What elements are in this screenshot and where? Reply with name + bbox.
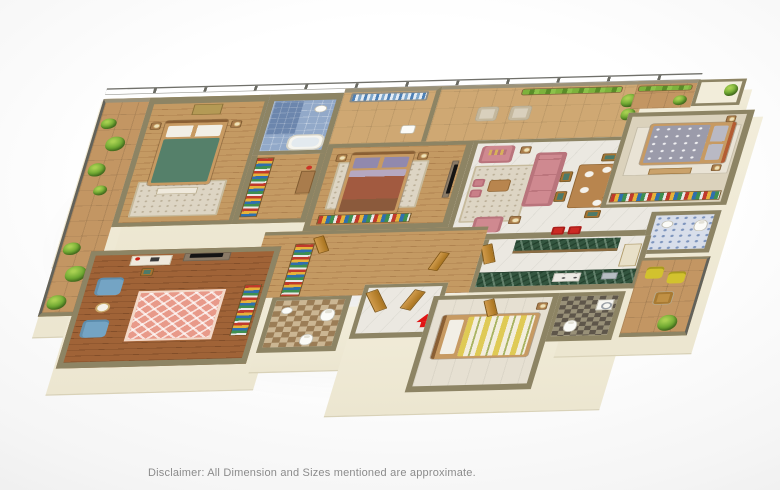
kitchen bbox=[469, 235, 652, 292]
laptop bbox=[150, 257, 160, 261]
plant-icon bbox=[672, 95, 689, 105]
bedroom-3-bed bbox=[639, 122, 737, 165]
plant-icon bbox=[45, 295, 69, 310]
wardrobe bbox=[316, 213, 412, 225]
planter-box bbox=[521, 86, 624, 95]
bathroom-2 bbox=[256, 296, 352, 353]
bed-bench bbox=[156, 187, 199, 195]
toilet bbox=[318, 308, 336, 321]
wardrobe bbox=[229, 284, 262, 336]
wicker-chair bbox=[507, 106, 533, 121]
flower-vase bbox=[306, 166, 313, 170]
utility-bathroom bbox=[545, 291, 626, 342]
bathtub bbox=[284, 134, 326, 151]
dresser bbox=[295, 171, 316, 194]
dining-chair bbox=[584, 210, 602, 218]
blue-armchair bbox=[93, 277, 125, 295]
wall-art bbox=[191, 104, 223, 115]
yellow-patio-chair bbox=[644, 267, 665, 279]
utility-bed bbox=[430, 313, 540, 359]
utility-balcony bbox=[329, 86, 443, 144]
dining-chair bbox=[553, 191, 568, 202]
nightstand-lamp bbox=[230, 120, 243, 128]
nightstand-lamp bbox=[149, 122, 162, 130]
plant-icon bbox=[61, 242, 82, 255]
floor-lamp bbox=[519, 146, 532, 154]
washing-machine bbox=[595, 299, 615, 310]
master-bedroom bbox=[302, 140, 474, 231]
desk-chair bbox=[140, 268, 155, 276]
study-room bbox=[56, 246, 282, 368]
main-entry-door bbox=[399, 289, 426, 310]
wardrobe bbox=[280, 243, 315, 296]
washbasin bbox=[660, 220, 674, 228]
bedroom-2-rug bbox=[128, 180, 228, 218]
dining-chair bbox=[559, 171, 574, 182]
round-side-table bbox=[94, 302, 112, 312]
blue-armchair bbox=[79, 319, 111, 337]
corridor-door bbox=[313, 235, 329, 254]
pink-diamond-rug bbox=[124, 289, 227, 341]
kitchen-sink bbox=[601, 272, 619, 279]
utility-sink bbox=[399, 125, 416, 134]
wicker-chair bbox=[474, 106, 500, 121]
plant-icon bbox=[86, 163, 107, 177]
living-balcony bbox=[426, 81, 648, 142]
main-entry-door bbox=[365, 289, 387, 313]
nightstand-lamp bbox=[335, 154, 348, 162]
coffee-table bbox=[487, 179, 512, 191]
nightstand-lamp bbox=[416, 152, 429, 160]
bar-stool-red bbox=[551, 227, 566, 235]
utility-room-door bbox=[483, 298, 498, 317]
bar-stool-red bbox=[567, 226, 582, 234]
hob-stove bbox=[552, 273, 582, 282]
plant-icon bbox=[723, 84, 740, 96]
plant-icon bbox=[99, 118, 118, 129]
bed-bench bbox=[648, 168, 692, 175]
floor-lamp bbox=[508, 216, 522, 224]
wardrobe bbox=[608, 190, 721, 202]
washbasin bbox=[280, 307, 294, 315]
disclaimer-text: Disclaimer: All Dimension and Sizes ment… bbox=[148, 467, 476, 479]
yellow-patio-chair bbox=[666, 271, 687, 283]
washbasin bbox=[313, 105, 328, 113]
kitchen-door bbox=[481, 243, 496, 264]
kitchen-island bbox=[512, 238, 621, 254]
bathroom-3 bbox=[639, 210, 722, 254]
striped-cushion bbox=[488, 149, 507, 155]
plant-icon bbox=[655, 315, 679, 331]
side-shelf bbox=[536, 302, 549, 310]
tall-cabinet bbox=[618, 244, 642, 267]
planter-box bbox=[637, 84, 693, 91]
top-right-wall-block bbox=[691, 78, 748, 106]
toilet bbox=[692, 220, 709, 232]
shower-area bbox=[265, 101, 304, 135]
toilet bbox=[562, 320, 579, 332]
plant-icon bbox=[103, 136, 127, 151]
plant-icon bbox=[92, 185, 109, 195]
bedroom-3-balcony bbox=[630, 80, 699, 109]
corridor-door bbox=[428, 251, 451, 271]
wicker-chair bbox=[652, 291, 675, 305]
clothes-drying-rack bbox=[349, 91, 429, 102]
floorplan bbox=[11, 78, 780, 406]
toilet bbox=[298, 334, 315, 346]
